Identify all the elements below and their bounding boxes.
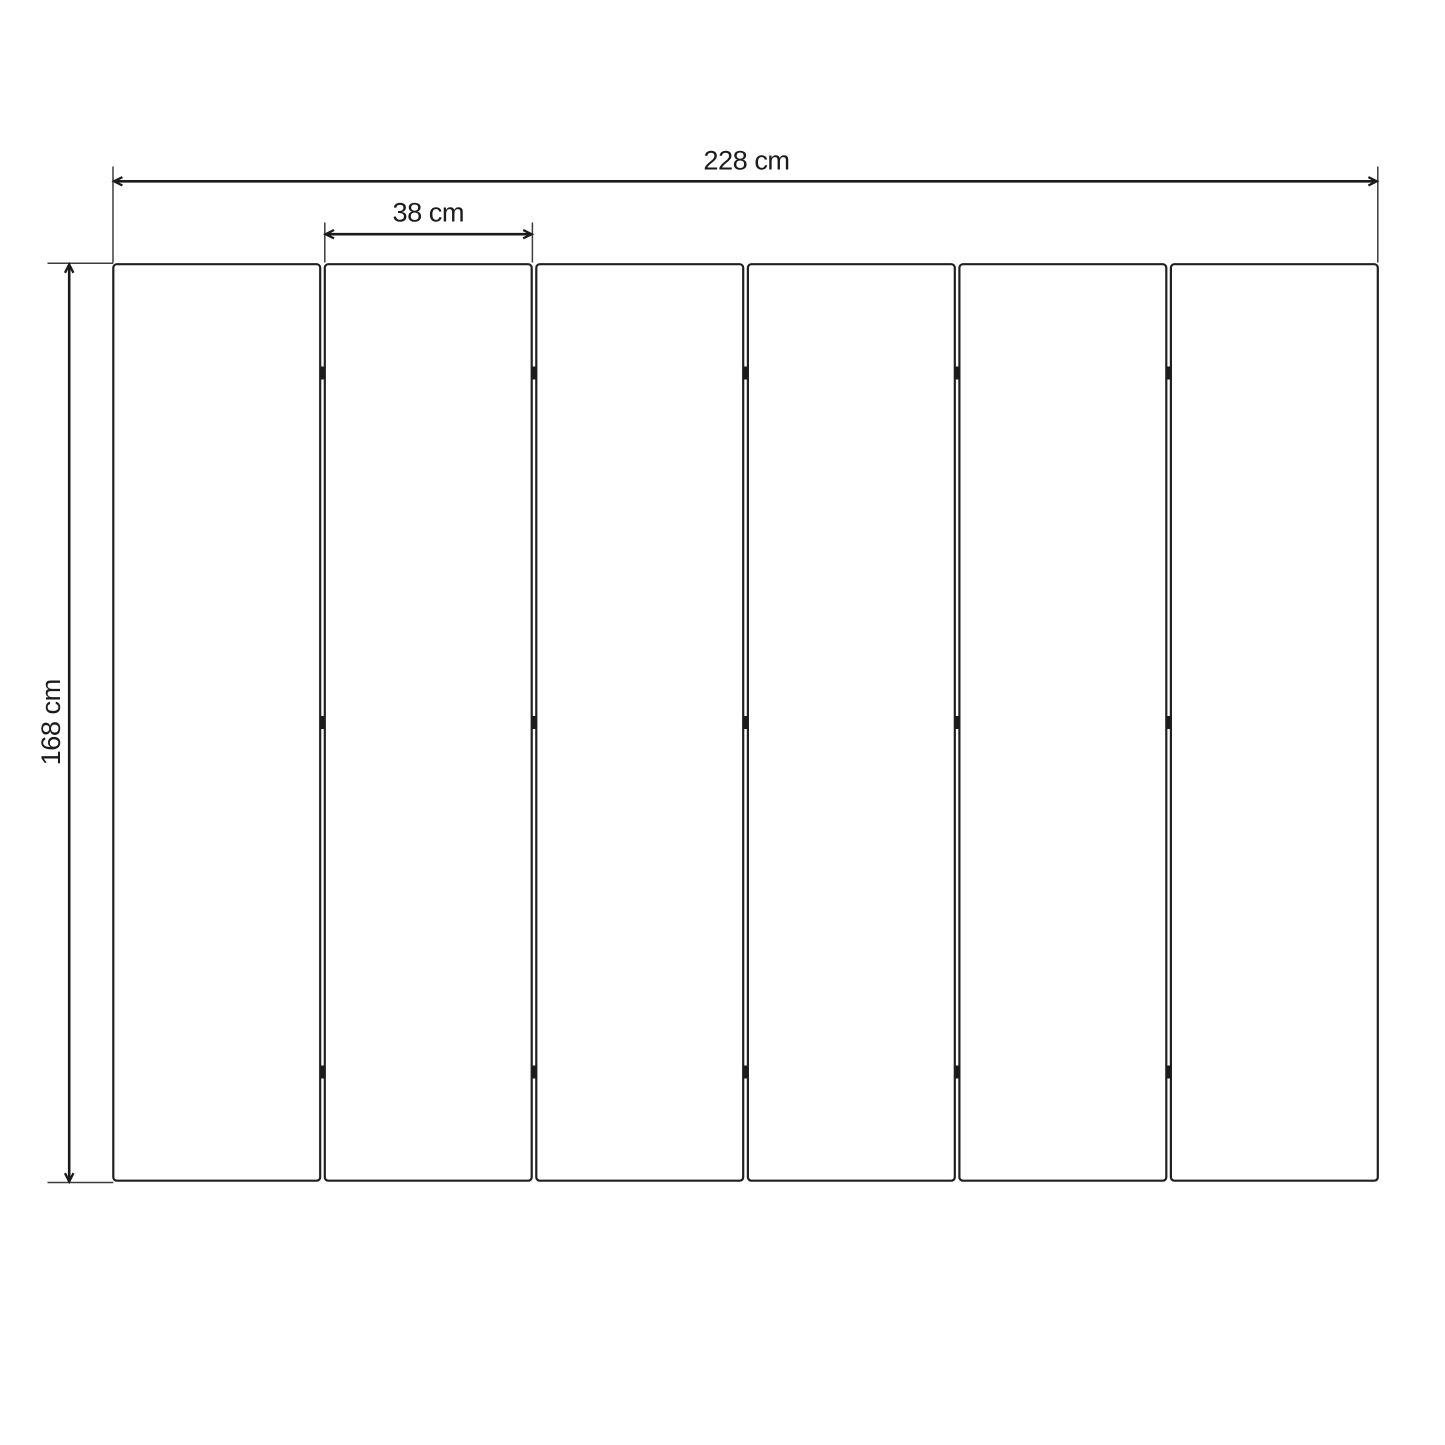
svg-text:38 cm: 38 cm <box>393 196 465 227</box>
svg-text:168 cm: 168 cm <box>35 679 66 765</box>
svg-text:228 cm: 228 cm <box>703 145 789 176</box>
